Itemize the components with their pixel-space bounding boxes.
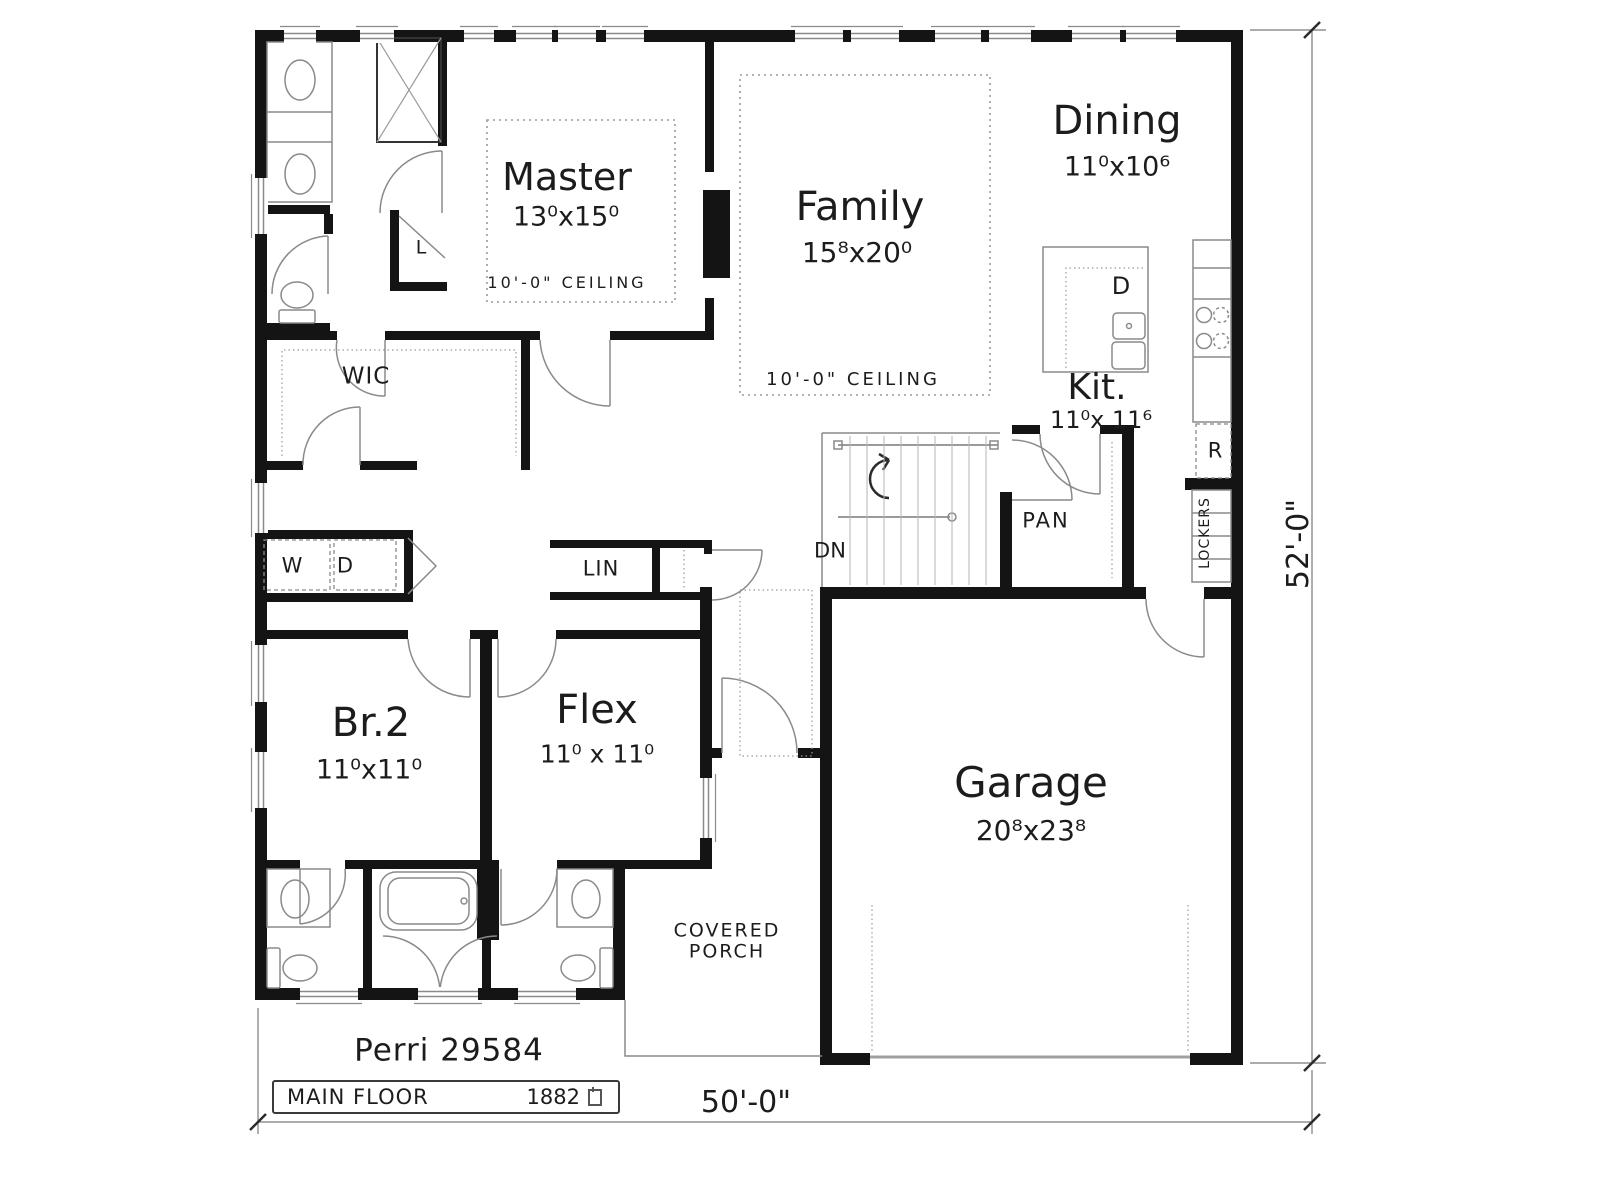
room-label-porch-line1: COVERED: [674, 922, 781, 941]
plan-title: Perri 29584: [354, 1036, 544, 1067]
room-label-family: Family: [796, 187, 925, 227]
floor-plan-page: Master 13⁰x15⁰ 10'-0" CEILING Family 15⁸…: [0, 0, 1600, 1200]
floor-area-value: 1882: [527, 1085, 580, 1109]
label-lockers: LOCKERS: [1198, 497, 1212, 569]
room-label-flex: Flex: [556, 690, 638, 730]
label-washer: W: [282, 556, 303, 577]
ceiling-note-master: 10'-0" CEILING: [487, 275, 646, 291]
floor-label: MAIN FLOOR: [287, 1085, 429, 1109]
room-label-garage: Garage: [954, 762, 1108, 804]
label-linen: L: [416, 239, 427, 258]
sqft-icon: [588, 1089, 602, 1106]
dimension-depth-label: 52'-0": [1284, 499, 1314, 589]
stair-treads: [850, 436, 986, 585]
room-label-kitchen: Kit.: [1067, 370, 1126, 406]
floor-plan-drawing: [0, 0, 1600, 1200]
label-refrigerator: R: [1208, 441, 1223, 462]
room-label-master: Master: [502, 158, 632, 196]
room-size-garage: 20⁸x23⁸: [976, 817, 1086, 845]
room-size-dining: 11⁰x10⁶: [1064, 154, 1170, 181]
ceiling-note-family: 10'-0" CEILING: [766, 371, 940, 389]
room-size-kitchen: 11⁰x 11⁶: [1050, 408, 1152, 432]
porch-outline: [625, 1000, 1190, 1057]
staircase: [822, 433, 1000, 587]
label-walk-in-closet: WIC: [342, 366, 391, 389]
room-size-master: 13⁰x15⁰: [513, 204, 619, 231]
room-size-flex: 11⁰ x 11⁰: [540, 742, 654, 767]
floor-area-box: MAIN FLOOR 1882: [272, 1080, 620, 1114]
label-pantry: PAN: [1022, 511, 1069, 532]
room-label-porch-line2: PORCH: [689, 943, 765, 962]
label-stairs-down: DN: [814, 541, 846, 562]
room-size-family: 15⁸x20⁰: [802, 239, 912, 267]
room-size-bedroom2: 11⁰x11⁰: [316, 757, 422, 784]
label-dishwasher: D: [1112, 274, 1130, 298]
room-label-bedroom2: Br.2: [332, 703, 410, 743]
label-linen-cabinet: LIN: [583, 559, 620, 580]
dimension-width-label: 50'-0": [701, 1088, 791, 1118]
label-dryer: D: [337, 556, 353, 577]
room-label-dining: Dining: [1052, 101, 1181, 141]
